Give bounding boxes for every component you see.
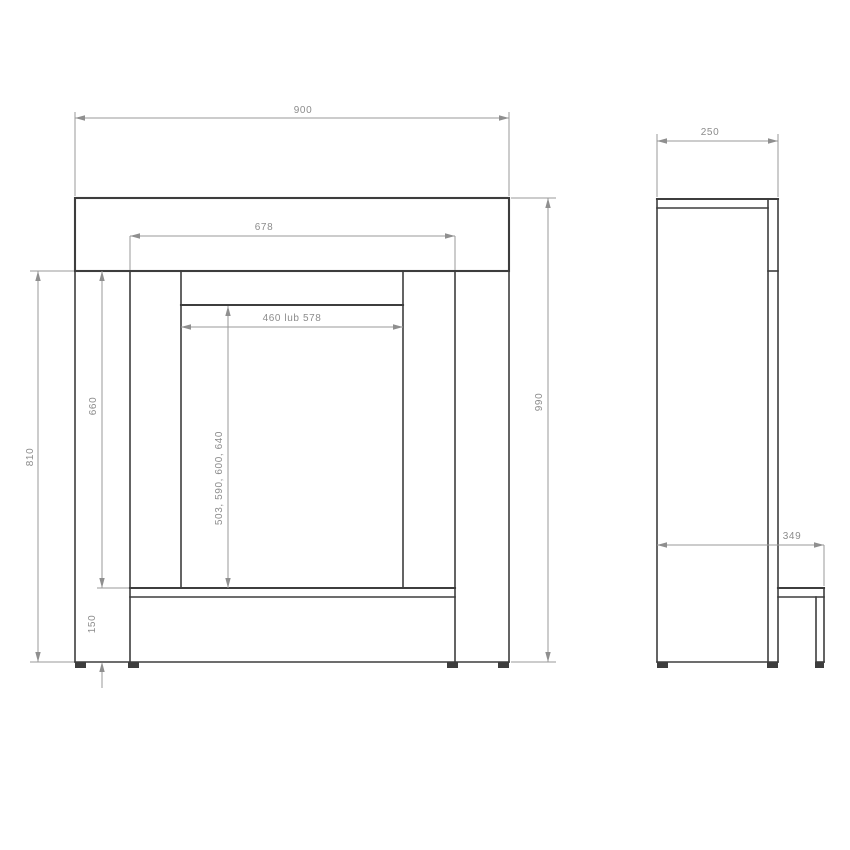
arrow-down-icon: [35, 652, 40, 662]
dim-inner-width: 678: [130, 222, 455, 270]
dim-plinth-height: 150: [87, 615, 105, 688]
front-view-feet: [75, 662, 509, 668]
foot: [498, 662, 509, 668]
dim-opening-height: 660: [88, 271, 129, 588]
dim-opening-height-label: 660: [88, 397, 99, 416]
foot: [128, 662, 139, 668]
dim-top-depth: 250: [657, 127, 778, 197]
foot: [657, 662, 668, 668]
dim-base-depth: 349: [657, 531, 824, 586]
foot: [447, 662, 458, 668]
dim-body-height: 810: [25, 271, 74, 662]
arrow-right-icon: [768, 138, 778, 143]
arrow-down-icon: [225, 578, 230, 588]
side-view-feet: [657, 662, 824, 668]
foot: [75, 662, 86, 668]
dim-total-height: 990: [511, 198, 556, 662]
arrow-left-icon: [130, 233, 140, 238]
side-view: 250 349: [657, 127, 824, 668]
front-view: 900 678 460 lub 578 503, 590, 600, 640: [25, 105, 556, 688]
dim-total-width-label: 900: [294, 105, 313, 116]
arrow-left-icon: [657, 138, 667, 143]
arrow-left-icon: [657, 542, 667, 547]
dim-plinth-height-label: 150: [87, 615, 98, 634]
arrow-left-icon: [181, 324, 191, 329]
mantel-shelf-outline: [75, 198, 509, 271]
arrow-right-icon: [814, 542, 824, 547]
arrow-up-icon: [35, 271, 40, 281]
arrow-up-icon: [99, 662, 104, 672]
dim-insert-heights-label: 503, 590, 600, 640: [214, 431, 225, 525]
dim-body-height-label: 810: [25, 448, 36, 467]
arrow-right-icon: [445, 233, 455, 238]
arrow-down-icon: [545, 652, 550, 662]
dim-opening-width: 460 lub 578: [181, 313, 403, 330]
dim-base-depth-label: 349: [783, 531, 802, 542]
dim-opening-width-label: 460 lub 578: [263, 313, 322, 324]
foot: [815, 662, 824, 668]
arrow-down-icon: [99, 578, 104, 588]
side-view-outline: [657, 199, 824, 662]
arrow-up-icon: [545, 198, 550, 208]
dim-inner-width-label: 678: [255, 222, 274, 233]
fireplace-surround-dimension-drawing: 900 678 460 lub 578 503, 590, 600, 640: [0, 0, 850, 850]
technical-drawing-canvas: 900 678 460 lub 578 503, 590, 600, 640: [0, 0, 850, 850]
arrow-left-icon: [75, 115, 85, 120]
arrow-up-icon: [99, 271, 104, 281]
foot: [767, 662, 778, 668]
front-view-outline: [75, 198, 509, 662]
dim-total-width: 900: [75, 105, 509, 196]
arrow-right-icon: [499, 115, 509, 120]
dim-top-depth-label: 250: [701, 127, 720, 138]
arrow-up-icon: [225, 306, 230, 316]
dim-insert-heights: 503, 590, 600, 640: [214, 306, 231, 588]
arrow-right-icon: [393, 324, 403, 329]
dim-total-height-label: 990: [534, 393, 545, 412]
